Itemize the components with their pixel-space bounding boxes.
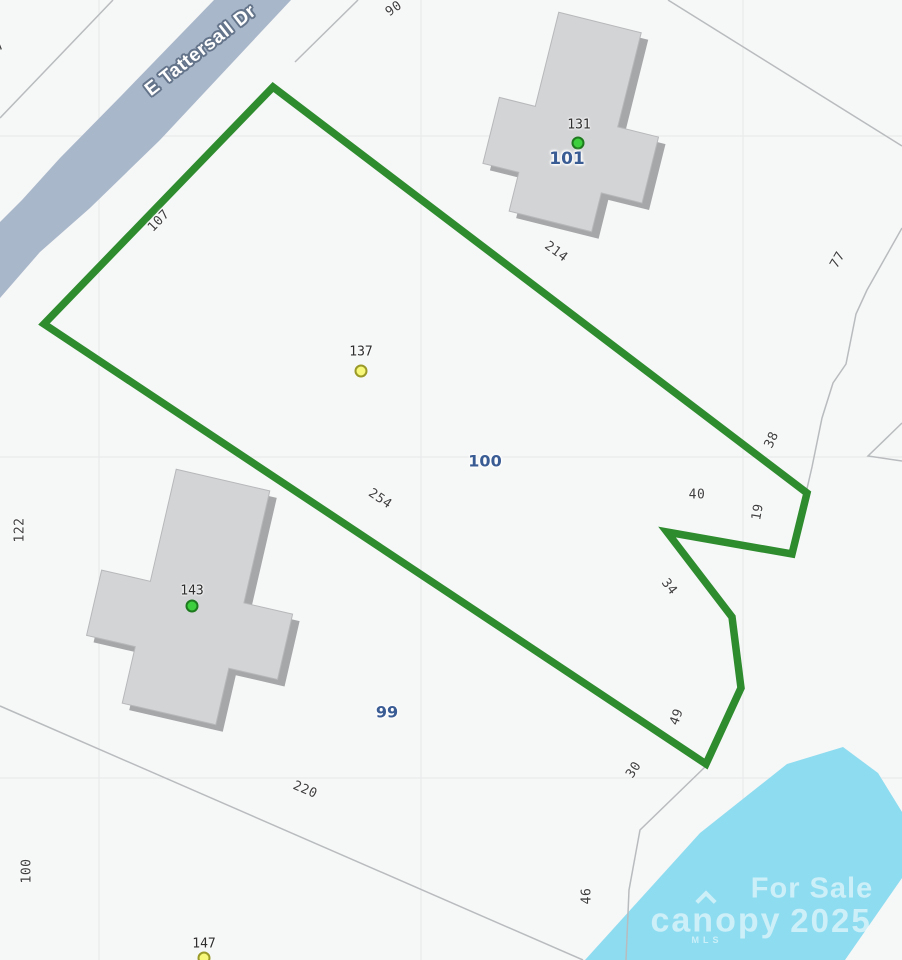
house-marker-green-131[interactable] bbox=[572, 137, 585, 150]
dimension-label: 46 bbox=[580, 888, 595, 905]
dimension-label: 100 bbox=[20, 859, 35, 884]
house-marker-yellow-137[interactable] bbox=[355, 365, 368, 378]
parcel-line-topright bbox=[668, 0, 902, 146]
house-marker-yellow-147[interactable] bbox=[198, 952, 211, 960]
dimension-label: 122 bbox=[13, 518, 28, 543]
map-layers bbox=[0, 0, 902, 960]
watermark-year: 2025 bbox=[790, 902, 871, 940]
parcel-number-101: 101 bbox=[549, 149, 585, 169]
parcel-line-right bbox=[806, 228, 902, 493]
dimension-label: 19 bbox=[749, 502, 767, 521]
dimension-label: 40 bbox=[689, 488, 706, 503]
parcel-number-99: 99 bbox=[376, 703, 398, 722]
map-canvas[interactable]: E Tattersall Dr 7 90 107 214 77 38 40 19… bbox=[0, 0, 902, 960]
watermark-mls: MLS bbox=[692, 935, 723, 945]
parcel-line-topleft bbox=[0, 0, 113, 118]
parcel-corner-right bbox=[868, 423, 902, 461]
house-marker-green-143[interactable] bbox=[186, 600, 199, 613]
road-band bbox=[0, 0, 291, 298]
parcel-line-top bbox=[295, 0, 358, 62]
parcel-number-100: 100 bbox=[468, 452, 501, 471]
parcel-line-bottomleft bbox=[0, 706, 583, 960]
house-label-143: 143 bbox=[180, 584, 203, 599]
house-label-137: 137 bbox=[349, 345, 372, 360]
house-label-147: 147 bbox=[192, 937, 215, 952]
house-label-131: 131 bbox=[567, 118, 590, 133]
